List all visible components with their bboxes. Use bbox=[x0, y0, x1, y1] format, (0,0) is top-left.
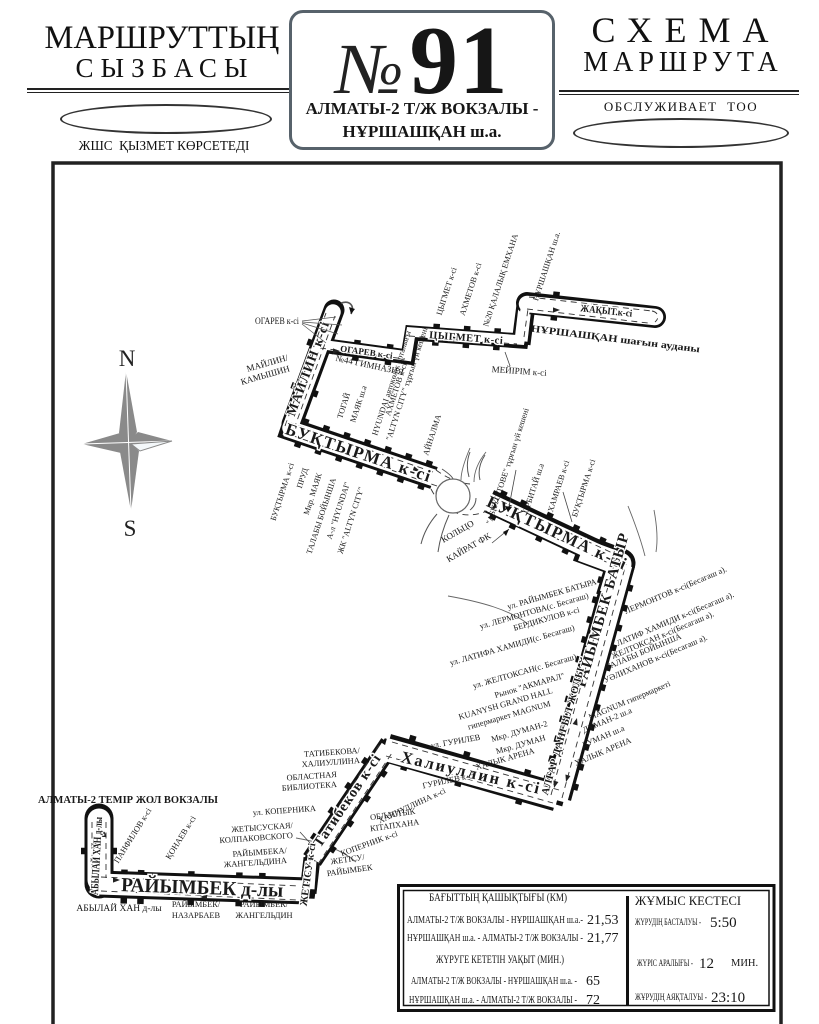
svg-text:21,53: 21,53 bbox=[587, 913, 619, 928]
svg-text:АБЫЛАЙ ХАН д-лы: АБЫЛАЙ ХАН д-лы bbox=[76, 902, 162, 914]
svg-text:23:10: 23:10 bbox=[711, 990, 745, 1006]
svg-text:ЖҮРУГЕ КЕТЕТІН УАҚЫТ (МИН.): ЖҮРУГЕ КЕТЕТІН УАҚЫТ (МИН.) bbox=[436, 954, 564, 966]
svg-text:№20 ҚАЛАЛЫҚ ЕМХАНА: №20 ҚАЛАЛЫҚ ЕМХАНА bbox=[481, 233, 520, 328]
svg-text:ХАМРАЕВ к-сі: ХАМРАЕВ к-сі bbox=[546, 459, 571, 513]
svg-text:БУҚТЫРМА к-сі: БУҚТЫРМА к-сі bbox=[570, 458, 597, 519]
svg-text:КОПЕРНИК к-сі: КОПЕРНИК к-сі bbox=[339, 829, 399, 858]
svg-text:ЖҮРУДІҢ БАСТАЛУЫ -: ЖҮРУДІҢ БАСТАЛУЫ - bbox=[635, 918, 701, 928]
svg-text:КОЛПАКОВСКОГО: КОЛПАКОВСКОГО bbox=[219, 831, 293, 845]
svg-text:65: 65 bbox=[586, 974, 600, 989]
svg-text:ЖҰРУДІҢ АЯҚТАЛУЫ -: ЖҰРУДІҢ АЯҚТАЛУЫ - bbox=[635, 993, 707, 1003]
svg-text:12: 12 bbox=[699, 956, 714, 972]
svg-text:АЛМАТЫ-2 Т/Ж ВОКЗАЛЫ - НҰРШАШҚ: АЛМАТЫ-2 Т/Ж ВОКЗАЛЫ - НҰРШАШҚАН ш.а. - bbox=[411, 976, 577, 987]
svg-text:N: N bbox=[119, 346, 136, 371]
svg-text:БАҒЫТТЫҢ ҚАШЫҚТЫҒЫ (КМ): БАҒЫТТЫҢ ҚАШЫҚТЫҒЫ (КМ) bbox=[429, 892, 567, 904]
svg-text:АЛМАТЫ-2 ТЕМІР ЖОЛ ВОКЗАЛЫ: АЛМАТЫ-2 ТЕМІР ЖОЛ ВОКЗАЛЫ bbox=[38, 795, 219, 806]
svg-text:НАЗАРБАЕВ: НАЗАРБАЕВ bbox=[172, 911, 221, 920]
svg-text:ҚОНАЕВ к-сі: ҚОНАЕВ к-сі bbox=[164, 814, 198, 861]
svg-text:21,77: 21,77 bbox=[587, 931, 619, 946]
svg-text:МЕЙІРІМ к-сі: МЕЙІРІМ к-сі bbox=[491, 364, 547, 378]
svg-text:ЖҮРІС АРАЛЫҒЫ -: ЖҮРІС АРАЛЫҒЫ - bbox=[637, 959, 693, 969]
svg-text:5:50: 5:50 bbox=[710, 915, 737, 931]
svg-text:ЛЕРМОНТОВ к-сі(Бесагаш а).: ЛЕРМОНТОВ к-сі(Бесагаш а). bbox=[623, 565, 728, 616]
svg-text:ОРБИТАЙ ш.а: ОРБИТАЙ ш.а bbox=[521, 462, 546, 514]
svg-text:НҰРШАШҚАН ш.а.: НҰРШАШҚАН ш.а. bbox=[531, 231, 562, 302]
svg-text:S: S bbox=[124, 516, 137, 541]
svg-text:НҰРШАШҚАН ш.а. - АЛМАТЫ-2 Т/Ж: НҰРШАШҚАН ш.а. - АЛМАТЫ-2 Т/Ж ВОКЗАЛЫ - bbox=[407, 933, 583, 944]
svg-text:БУҚТЫРМА к-сі: БУҚТЫРМА к-сі bbox=[269, 461, 296, 522]
svg-text:АЙНАЛМА: АЙНАЛМА bbox=[421, 413, 443, 456]
svg-text:ул. КОПЕРНИКА: ул. КОПЕРНИКА bbox=[252, 804, 316, 817]
svg-text:ЦЫГМЕТ к-сі: ЦЫГМЕТ к-сі bbox=[435, 266, 459, 317]
svg-text:НҰРШАШҚАН шағын ауданы: НҰРШАШҚАН шағын ауданы bbox=[530, 324, 700, 356]
svg-text:АЛМАТЫ-2 Т/Ж ВОКЗАЛЫ - НҰРШАШҚ: АЛМАТЫ-2 Т/Ж ВОКЗАЛЫ - НҰРШАШҚАН ш.а.- bbox=[407, 915, 583, 926]
svg-text:ул. ГУРИЛЕВ: ул. ГУРИЛЕВ bbox=[430, 733, 481, 751]
svg-text:НҰРШАШҚАН ш.а. - АЛМАТЫ-2 Т/Ж: НҰРШАШҚАН ш.а. - АЛМАТЫ-2 Т/Ж ВОКЗАЛЫ - bbox=[409, 995, 577, 1006]
svg-text:ЖАНГЕЛЬДИН: ЖАНГЕЛЬДИН bbox=[235, 911, 292, 920]
svg-text:АХМЕТОВ к-сі: АХМЕТОВ к-сі bbox=[458, 261, 484, 317]
svg-text:МАЯК ш.а: МАЯК ш.а bbox=[348, 384, 368, 423]
svg-text:ОГАРЕВ к-сі: ОГАРЕВ к-сі bbox=[255, 316, 299, 326]
svg-text:ПАНФИЛОВ к-сі: ПАНФИЛОВ к-сі bbox=[112, 806, 153, 865]
svg-text:РАЙЫМБЕК/: РАЙЫМБЕК/ bbox=[240, 900, 289, 909]
svg-text:72: 72 bbox=[586, 993, 600, 1008]
svg-text:МИН.: МИН. bbox=[731, 958, 758, 969]
svg-text:ПРУД: ПРУД bbox=[295, 466, 310, 489]
svg-text:РАЙЫМБЕК/: РАЙЫМБЕК/ bbox=[172, 900, 221, 909]
svg-text:ЖҰМЫС КЕСТЕСІ: ЖҰМЫС КЕСТЕСІ bbox=[635, 894, 741, 908]
